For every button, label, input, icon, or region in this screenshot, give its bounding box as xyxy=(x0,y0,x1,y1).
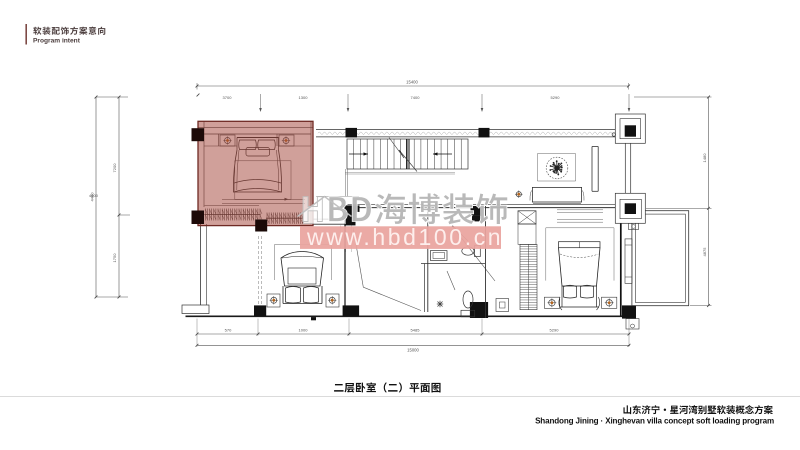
svg-text:7200: 7200 xyxy=(112,163,117,173)
svg-text:www.hbd100.cn: www.hbd100.cn xyxy=(306,224,503,250)
svg-text:4400: 4400 xyxy=(90,192,95,202)
svg-text:Program intent: Program intent xyxy=(33,38,81,45)
svg-text:15400: 15400 xyxy=(406,80,418,85)
svg-text:5290: 5290 xyxy=(551,95,561,100)
svg-text:1000: 1000 xyxy=(299,328,309,333)
svg-text:3700: 3700 xyxy=(223,95,233,100)
svg-text:1480: 1480 xyxy=(702,153,707,163)
svg-text:15000: 15000 xyxy=(407,348,419,353)
svg-text:5290: 5290 xyxy=(550,328,560,333)
svg-text:1300: 1300 xyxy=(299,95,309,100)
svg-text:Shandong Jining · Xinghevan vi: Shandong Jining · Xinghevan villa concep… xyxy=(535,416,774,425)
svg-text:5485: 5485 xyxy=(411,328,421,333)
svg-text:4875: 4875 xyxy=(702,247,707,257)
svg-text:1750: 1750 xyxy=(112,253,117,263)
svg-text:7400: 7400 xyxy=(411,95,421,100)
svg-text:570: 570 xyxy=(225,328,232,333)
